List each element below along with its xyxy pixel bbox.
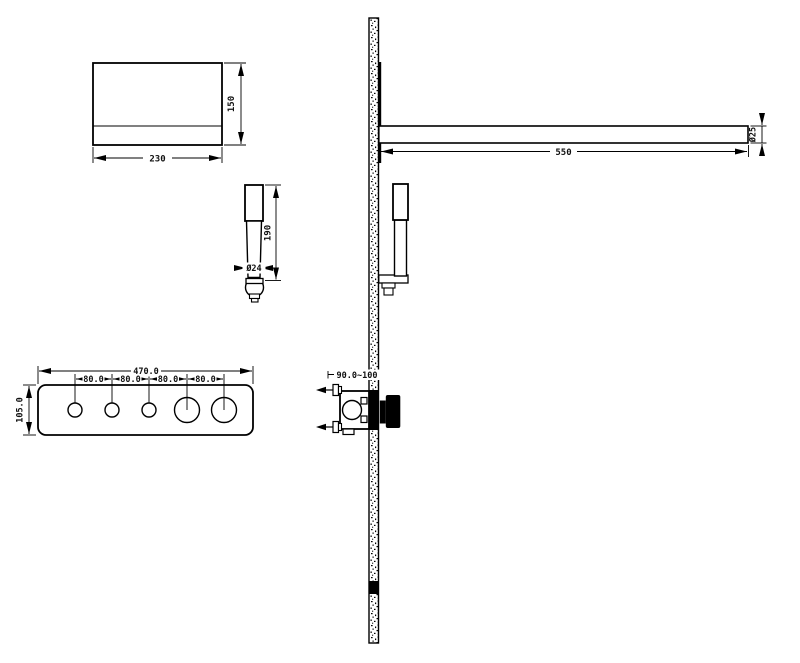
hand-shower-bracket-bar <box>246 279 263 284</box>
dim-label-hand-shower-diameter: Ø24 <box>245 263 261 274</box>
dim-hand-shower-diameter: Ø24 <box>236 263 276 275</box>
shower-arm-view: 550 Ø25 <box>379 117 767 158</box>
dim-label-overhead-width: 230 <box>149 155 165 165</box>
hand-shower-front-view: Ø24 190 <box>236 185 281 302</box>
overhead-shower-body <box>93 63 222 145</box>
shower-arm-body <box>379 126 748 143</box>
elbow-fitting-upper <box>382 283 395 288</box>
dim-label-valve-depth: 90.0~100 <box>337 371 378 381</box>
technical-drawing: 150 230 Ø24 190 <box>0 0 800 663</box>
dim-label-arm-diameter: Ø25 <box>748 127 759 143</box>
valve-inlet-lower <box>316 422 342 433</box>
dim-label-spacing-3: 80.0 <box>158 375 178 385</box>
valve-port-lower <box>361 416 367 423</box>
valve-inlet-upper <box>316 385 342 396</box>
dim-panel-height: 105.0 <box>16 385 37 435</box>
dim-panel-width: 470.0 <box>38 366 253 385</box>
overhead-shower-view: 150 230 <box>93 63 246 165</box>
dim-label-spacing-2: 80.0 <box>120 375 140 385</box>
wall-mount-plate <box>379 62 381 163</box>
drawing-svg: 150 230 Ø24 190 <box>0 0 800 663</box>
elbow-fitting-lower <box>384 288 393 295</box>
control-panel-view: 470.0 80.0 80.0 80.0 80.0 105.0 <box>16 366 254 436</box>
dim-label-overhead-height: 150 <box>227 96 237 112</box>
dim-valve-depth: 90.0~100 <box>328 370 380 382</box>
dim-hand-shower-length: 190 <box>264 185 282 281</box>
wall-hatch <box>369 18 379 643</box>
dim-overhead-width: 230 <box>93 147 222 165</box>
dim-label-hand-shower-length: 190 <box>264 225 274 241</box>
wall-section <box>369 18 381 643</box>
wall-valve-flange <box>369 390 378 430</box>
dim-label-panel-height: 105.0 <box>16 397 26 423</box>
dim-label-arm-length: 550 <box>555 148 571 158</box>
valve-knob-neck <box>380 401 386 424</box>
valve-knob-grip <box>386 395 401 428</box>
hand-shower-head-side <box>393 184 408 220</box>
panel-button-2 <box>105 403 119 417</box>
dim-label-spacing-1: 80.0 <box>83 375 103 385</box>
dim-arm-diameter: Ø25 <box>748 117 767 152</box>
valve-port-upper <box>361 398 367 405</box>
dim-overhead-height: 150 <box>224 63 246 145</box>
hand-shower-fitting-lower <box>252 299 259 303</box>
panel-button-3 <box>142 403 156 417</box>
hand-shower-fitting-upper <box>250 294 260 299</box>
wall-inlet-mark <box>369 581 378 594</box>
hand-shower-handle-side <box>395 220 407 276</box>
dim-arm-length: 550 <box>381 145 749 158</box>
panel-button-1 <box>68 403 82 417</box>
hand-shower-head <box>245 185 263 221</box>
mixer-valve-view: 90.0~100 <box>316 370 400 435</box>
valve-cartridge-circle <box>343 401 362 420</box>
dim-label-spacing-4: 80.0 <box>195 375 215 385</box>
hand-shower-wall-view <box>379 184 408 295</box>
valve-bottom-fitting <box>343 429 354 435</box>
